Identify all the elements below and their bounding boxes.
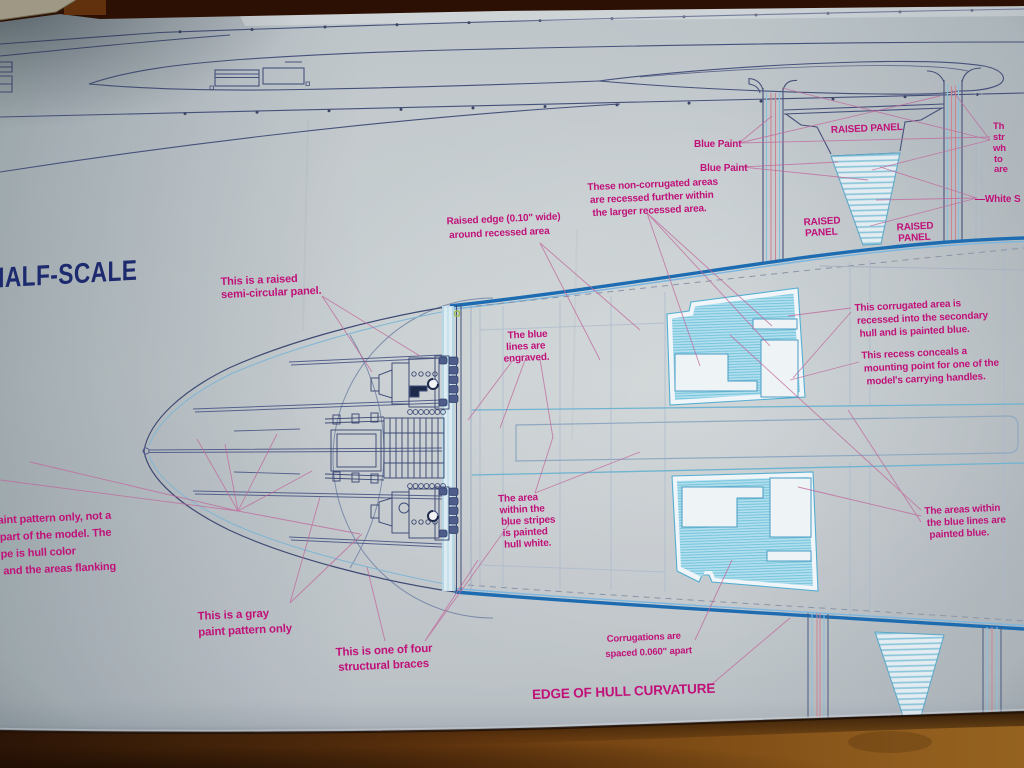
svg-text:wh: wh: [992, 143, 1006, 154]
svg-text:are: are: [994, 164, 1008, 175]
svg-text:Blue Paint: Blue Paint: [694, 139, 742, 150]
svg-text:PANEL: PANEL: [805, 227, 838, 240]
svg-text:Blue Paint: Blue Paint: [700, 163, 748, 174]
svg-text:—White S: —White S: [975, 194, 1021, 205]
svg-text:PANEL: PANEL: [898, 232, 931, 245]
svg-text:Th: Th: [993, 121, 1005, 132]
svg-text:hull white.: hull white.: [504, 538, 552, 551]
svg-text:engraved.: engraved.: [503, 352, 550, 365]
svg-text:str: str: [993, 132, 1005, 143]
